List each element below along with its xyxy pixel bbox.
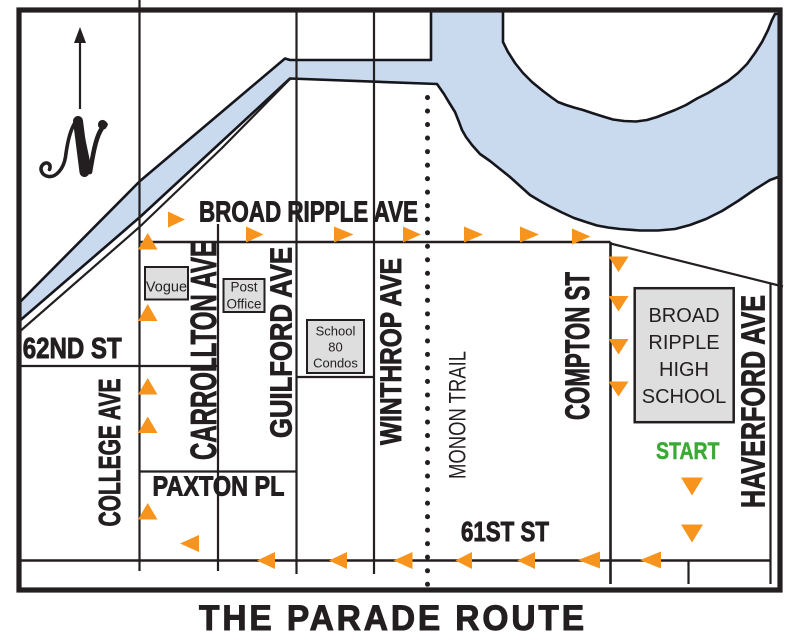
svg-text:CARROLLTON AVE: CARROLLTON AVE	[183, 241, 224, 460]
svg-text:80: 80	[328, 340, 342, 355]
svg-text:Post: Post	[230, 280, 257, 295]
svg-text:SCHOOL: SCHOOL	[642, 386, 726, 408]
svg-text:Office: Office	[226, 297, 261, 312]
svg-text:COMPTON ST: COMPTON ST	[559, 272, 597, 420]
svg-text:BROAD RIPPLE AVE: BROAD RIPPLE AVE	[199, 197, 418, 229]
svg-text:PAXTON PL: PAXTON PL	[153, 471, 285, 502]
svg-text:61ST ST: 61ST ST	[461, 516, 549, 547]
svg-text:HAVERFORD AVE: HAVERFORD AVE	[735, 295, 772, 508]
svg-text:RIPPLE: RIPPLE	[648, 332, 719, 354]
svg-text:Vogue: Vogue	[146, 280, 187, 296]
svg-text:THE PARADE ROUTE: THE PARADE ROUTE	[199, 599, 587, 638]
svg-text:WINTHROP AVE: WINTHROP AVE	[375, 258, 408, 445]
svg-text:BROAD: BROAD	[648, 305, 719, 327]
svg-text:62ND ST: 62ND ST	[23, 333, 122, 365]
svg-text:HIGH: HIGH	[659, 359, 709, 381]
svg-text:School: School	[316, 324, 356, 339]
svg-text:COLLEGE AVE: COLLEGE AVE	[93, 379, 127, 527]
svg-text:MONON TRAIL: MONON TRAIL	[445, 351, 472, 479]
svg-text:GUILFORD AVE: GUILFORD AVE	[264, 247, 299, 438]
svg-text:START: START	[656, 438, 720, 465]
svg-text:Condos: Condos	[313, 356, 358, 371]
